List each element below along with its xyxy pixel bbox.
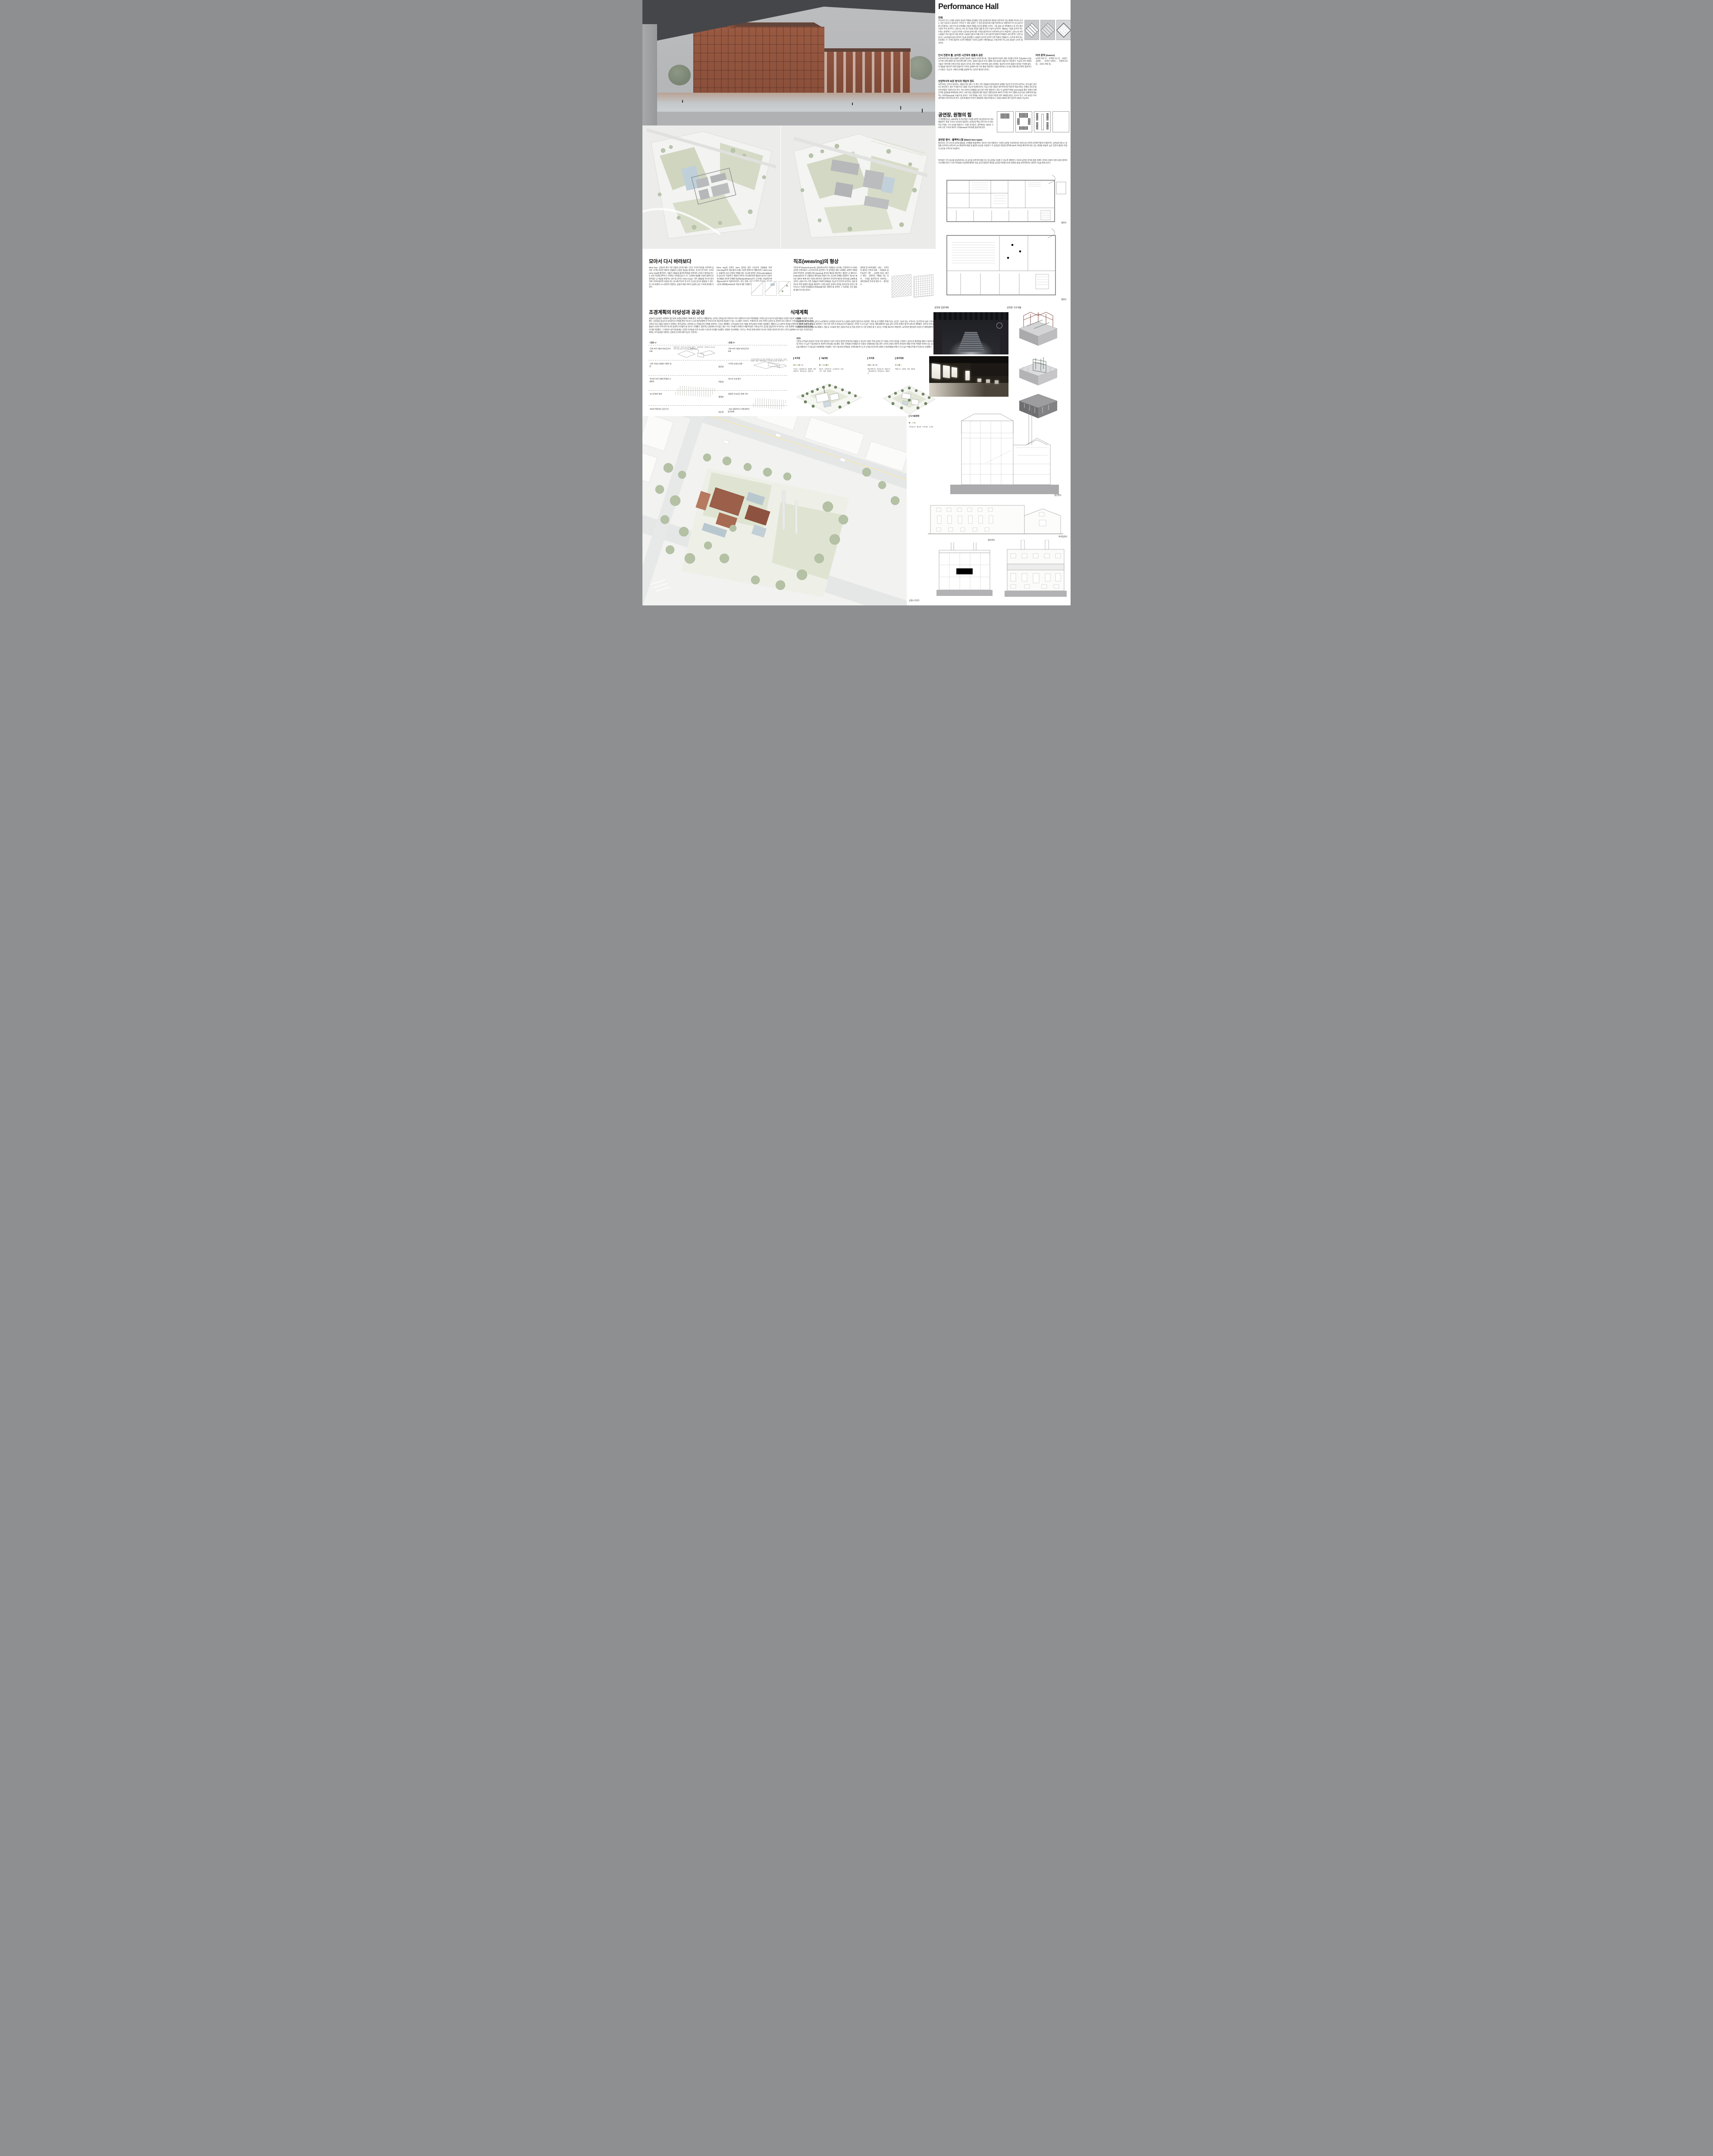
structure-heading: 공연장 구조개념 bbox=[1007, 306, 1021, 309]
palette-plants: 가막살나무 · 불두화 · 노루오줌 · 수크령 bbox=[909, 426, 933, 428]
end-stage-seating-icon bbox=[997, 111, 1014, 132]
trace-heading: 터의 흔적 (trance) bbox=[1036, 53, 1068, 57]
lit-floor bbox=[929, 383, 1008, 397]
matrix-park2-row2-label: -수직적 교림의 경관 bbox=[728, 363, 750, 365]
matrix-park2-row2-graphic bbox=[751, 398, 787, 410]
exhibition-hall-render bbox=[929, 356, 1008, 397]
spiral-stair bbox=[996, 323, 1002, 329]
palette-shade-garden-2: 음지정원 백합나무 · 진달래 · 관중 · 털머위 bbox=[895, 357, 918, 370]
matrix-park1-row3-label: -특수한 프로그램에 적합한 시설배치 bbox=[649, 378, 672, 382]
long-section-label: 종단면도 bbox=[1054, 494, 1062, 497]
paved-ground bbox=[657, 112, 935, 125]
matrix-category-3: 생태성 bbox=[718, 396, 723, 398]
flat-floor-icon bbox=[1052, 111, 1069, 132]
long-section-drawing: 종단면도 bbox=[944, 408, 1062, 501]
landscape-heading: 조경계획의 타당성과 공공성 bbox=[649, 309, 705, 316]
palette-plants: 낙우송 · 노랑말채나무 · 황매화 · 메타세쿼이아 · 종작살나무 · 병꽃… bbox=[793, 368, 817, 373]
matrix-park2-row5-label: - 내부 집중적이고 외면강화의 동선체계 bbox=[728, 408, 750, 413]
floor-plan-1-drawing bbox=[943, 174, 1068, 224]
palette-grass-garden-1: 초지원 낙우송 · 노랑말채나무 · 황매화 · 메타세쿼이아 · 종작살나무 … bbox=[793, 357, 817, 373]
arena-seating-icon bbox=[1015, 111, 1032, 132]
planting-park2-body: 기존의 나무들이 중요한 가치로 이미 점유하고 있어 기존의 경관적 분위기와… bbox=[796, 340, 938, 355]
aerial-site-render bbox=[642, 416, 907, 605]
sawtooth-mass-solid-icon bbox=[1024, 20, 1039, 40]
matrix-park1-row2-graphic bbox=[673, 385, 717, 398]
premise-concept-diagrams bbox=[1024, 20, 1071, 40]
tree-blob bbox=[668, 65, 691, 85]
matrix-park2-row4-label: -통합적 녹지공간 체계 구축 bbox=[728, 393, 750, 395]
weaving-col1: 직조된 바닥(weaved ground): 공원2에 남겨진 건물들의 시간대… bbox=[793, 266, 857, 300]
palette-title: 초지원 bbox=[867, 357, 891, 360]
perception-body: 보존되어야 할 산업시설물이 공원의 중요한 내용이 되어야 할 때, 그들의 … bbox=[938, 57, 1031, 76]
site-plan-park1 bbox=[642, 125, 780, 249]
blackbox-heading: 공연장 형식 : 블랙박스형 (black box type) bbox=[938, 138, 982, 141]
site-plan-park2-drawing bbox=[781, 125, 936, 249]
structure-axon-green-frame bbox=[1016, 354, 1061, 389]
south-elevation-drawing bbox=[926, 503, 1065, 539]
floor-plan-2: 평면도 bbox=[943, 228, 1068, 301]
floor-plan-2-drawing bbox=[943, 228, 1068, 298]
brick-factory-building bbox=[693, 27, 824, 93]
north-elevation-drawing: 북측입면도 bbox=[1004, 540, 1068, 600]
brick-arcade-wing bbox=[824, 52, 911, 93]
matrix-category-2: 이용성 bbox=[718, 381, 723, 383]
weaving-pattern-diagrams bbox=[892, 275, 933, 297]
palette-grass-garden-2: 초지원 메타세쿼이아 · 종작살나무 · 병꽃나무 · 메타세쿼이아 · 종작살… bbox=[867, 357, 891, 375]
hero-courtyard-render bbox=[642, 0, 935, 125]
mirror-loop-step1-icon bbox=[751, 281, 763, 296]
palette-title: 음지정원 bbox=[895, 357, 918, 360]
aerial-label: 공원2 조감도 bbox=[909, 599, 920, 602]
matrix-park1-row5-label: -외부로 확장하는 동선구조 bbox=[649, 408, 672, 411]
gather-heading: 모아서 다시 바라보다 bbox=[649, 258, 691, 265]
matrix-park1-row2-label: -기존 수림과 연계한 수평적 경관 bbox=[649, 363, 672, 367]
weaved-ground-pattern-icon bbox=[892, 274, 911, 298]
floor-plan-1: 평면도 bbox=[943, 174, 1068, 224]
planting-heading: 식재계획 bbox=[790, 309, 808, 316]
reflecting-pool bbox=[657, 93, 935, 112]
matrix-park1-row4-label: -유니트화된 체계 bbox=[649, 393, 672, 395]
site-diamond-outline-icon bbox=[1056, 20, 1071, 40]
palette-plants: 메타세쿼이아 · 종작살나무 · 병꽃나무 · 메타세쿼이아 · 종작살나무 ·… bbox=[867, 368, 891, 375]
perception-heading: 인식 전환의 틀, 상이한 시간대의 충돌과 공존 bbox=[938, 53, 983, 57]
matrix-park1-row1-label: -건축 프로그램과 외부공간의 조화 bbox=[649, 348, 672, 352]
matrix-park2-title: <공원 2> bbox=[728, 342, 735, 344]
matrix-park1-row1-graphic: 재생의 정원 · 기획전시장 및 화장실 · 역사관 · 그림자의정원 · 카페… bbox=[673, 346, 717, 358]
weaving-heading: 직조(weaving)의 형상 bbox=[793, 258, 839, 265]
matrix-field-pattern-icon bbox=[914, 274, 933, 298]
traverse-seating-icon bbox=[1034, 111, 1051, 132]
premise-body: 우리나라 초기 근대화 산업의 중요한 역할을 담당했던 전방·일산방직의 편린… bbox=[938, 19, 1023, 50]
landscape-body: 공원1의 공공성은 사면에서 접근성과 순환동선체계 구축에 있다. 보존하고 … bbox=[649, 317, 813, 340]
page-title: Performance Hall bbox=[938, 2, 999, 11]
north-elevation-label: 북측입면도 bbox=[1058, 536, 1068, 538]
site-plan-park2 bbox=[780, 125, 936, 249]
matrix-park2-row1-label: -건축 프로그램과 외부공간의 조화 bbox=[728, 348, 750, 352]
palette-title: 도시숲정원 bbox=[909, 415, 933, 417]
hall-heading: 공연장, 원형의 힘 bbox=[938, 111, 971, 118]
palette-urban-forest-2: 도시숲정원 가막살나무 · 불두화 · 노루오줌 · 수크령 bbox=[909, 415, 933, 428]
blackbox-seating-diagrams bbox=[997, 111, 1069, 132]
theater-interior-render bbox=[933, 312, 1008, 354]
blackbox-body: 발전소의 구조 조건과 공연장 활용을 고려했을 때 블랙박스 형식이 가장 적… bbox=[938, 142, 1067, 157]
palette-plants: 백합나무 · 진달래 · 관중 · 털머위 bbox=[895, 368, 918, 370]
presentation-board: Performance Hall 전제 우리나라 초기 근대화 산업의 중요한 … bbox=[642, 0, 1071, 605]
trace-body: 남겨진 보존 건… 유추할 수도 있… 보았다. 공원의 … 조경과 건축의 …… bbox=[1036, 57, 1068, 79]
weaving-col2: 경비실 및 비지터센터 : 상당… 고려하여 새로운 건축과 대비… 직원들의 … bbox=[860, 266, 889, 297]
site-plan-park1-drawing bbox=[642, 125, 780, 249]
concrete-pillar bbox=[642, 24, 657, 125]
blackbox-body2: 변전실은 수직 동선을 담당하면서도 원 공간을 보존하여 팝업 전시 및 공연… bbox=[938, 159, 1067, 172]
planting-park1-label: 공원1 bbox=[796, 317, 801, 320]
preservation-body: 보존이라는 단어가 내포하는 개입의 폭은 넓다. 이 경우 기존 건물들의 원… bbox=[938, 83, 1037, 108]
person-figure bbox=[852, 103, 853, 105]
palette-title: 초지원 bbox=[793, 357, 817, 360]
elevation-plan-heading: 공연장 입면계획 bbox=[934, 306, 949, 309]
planting-axon-park1 bbox=[788, 379, 867, 417]
mirror-loop-mini-diagrams bbox=[751, 281, 791, 296]
matrix-category-4: 공공성 bbox=[718, 411, 723, 414]
gather-col1: Mirror loop : 공원1의 경우 기존 건물의 규모와 재료 그리고 … bbox=[649, 266, 714, 300]
plan2-label: 평면도 bbox=[1061, 298, 1067, 301]
person-figure bbox=[682, 100, 683, 103]
person-figure bbox=[900, 106, 901, 110]
palette-plants: 팽나무 · 공조팝나무 · 수수꽃다리 · 꼬랑사초 · 관중 · 털머위 bbox=[819, 368, 843, 373]
matrix-park1-title: <공원 1> bbox=[649, 342, 657, 344]
palette-shade-garden: 그늘정원 팽나무 · 공조팝나무 · 수수꽃다리 · 꼬랑사초 · 관중 · 털… bbox=[819, 357, 843, 373]
mirror-loop-step2-icon bbox=[765, 281, 777, 296]
mirror-loop-step3-icon bbox=[779, 281, 791, 296]
premise-heading: 전제 bbox=[938, 16, 943, 19]
cross-section-drawing: 횡단면도 bbox=[934, 542, 995, 599]
matrix-category-1: 경관성 bbox=[718, 366, 723, 368]
ceiling-truss bbox=[933, 312, 1008, 320]
planting-park1-body: 공원외곽으로 큰 나무를 심어 도시산책로의 시작점이 되도록 하고 공원의 상… bbox=[796, 320, 938, 336]
person-figure bbox=[922, 109, 923, 113]
sawtooth-mass-hatched-icon bbox=[1040, 20, 1055, 40]
hall-body: 구 화력발전소는 1930년대 초기의 철골 구조를 보존한 채 공연장으로 리… bbox=[938, 118, 993, 136]
plan1-label: 평면도 bbox=[1061, 222, 1067, 224]
preservation-heading: 산업역사의 보존 방식과 개입의 정도 bbox=[938, 79, 974, 83]
planting-park2-label: 공원2 bbox=[796, 337, 801, 340]
palette-title: 그늘정원 bbox=[819, 357, 843, 360]
structure-axon-steel bbox=[1016, 311, 1061, 351]
matrix-park2-row3-label: -최소의 시설 배치 bbox=[728, 378, 750, 380]
matrix-park1-facilities: 재생의 정원 · 기획전시장 및 화장실 · 역사관 · 그림자의정원 · 카페… bbox=[673, 346, 717, 358]
cross-section-label: 횡단면도 bbox=[988, 539, 995, 542]
